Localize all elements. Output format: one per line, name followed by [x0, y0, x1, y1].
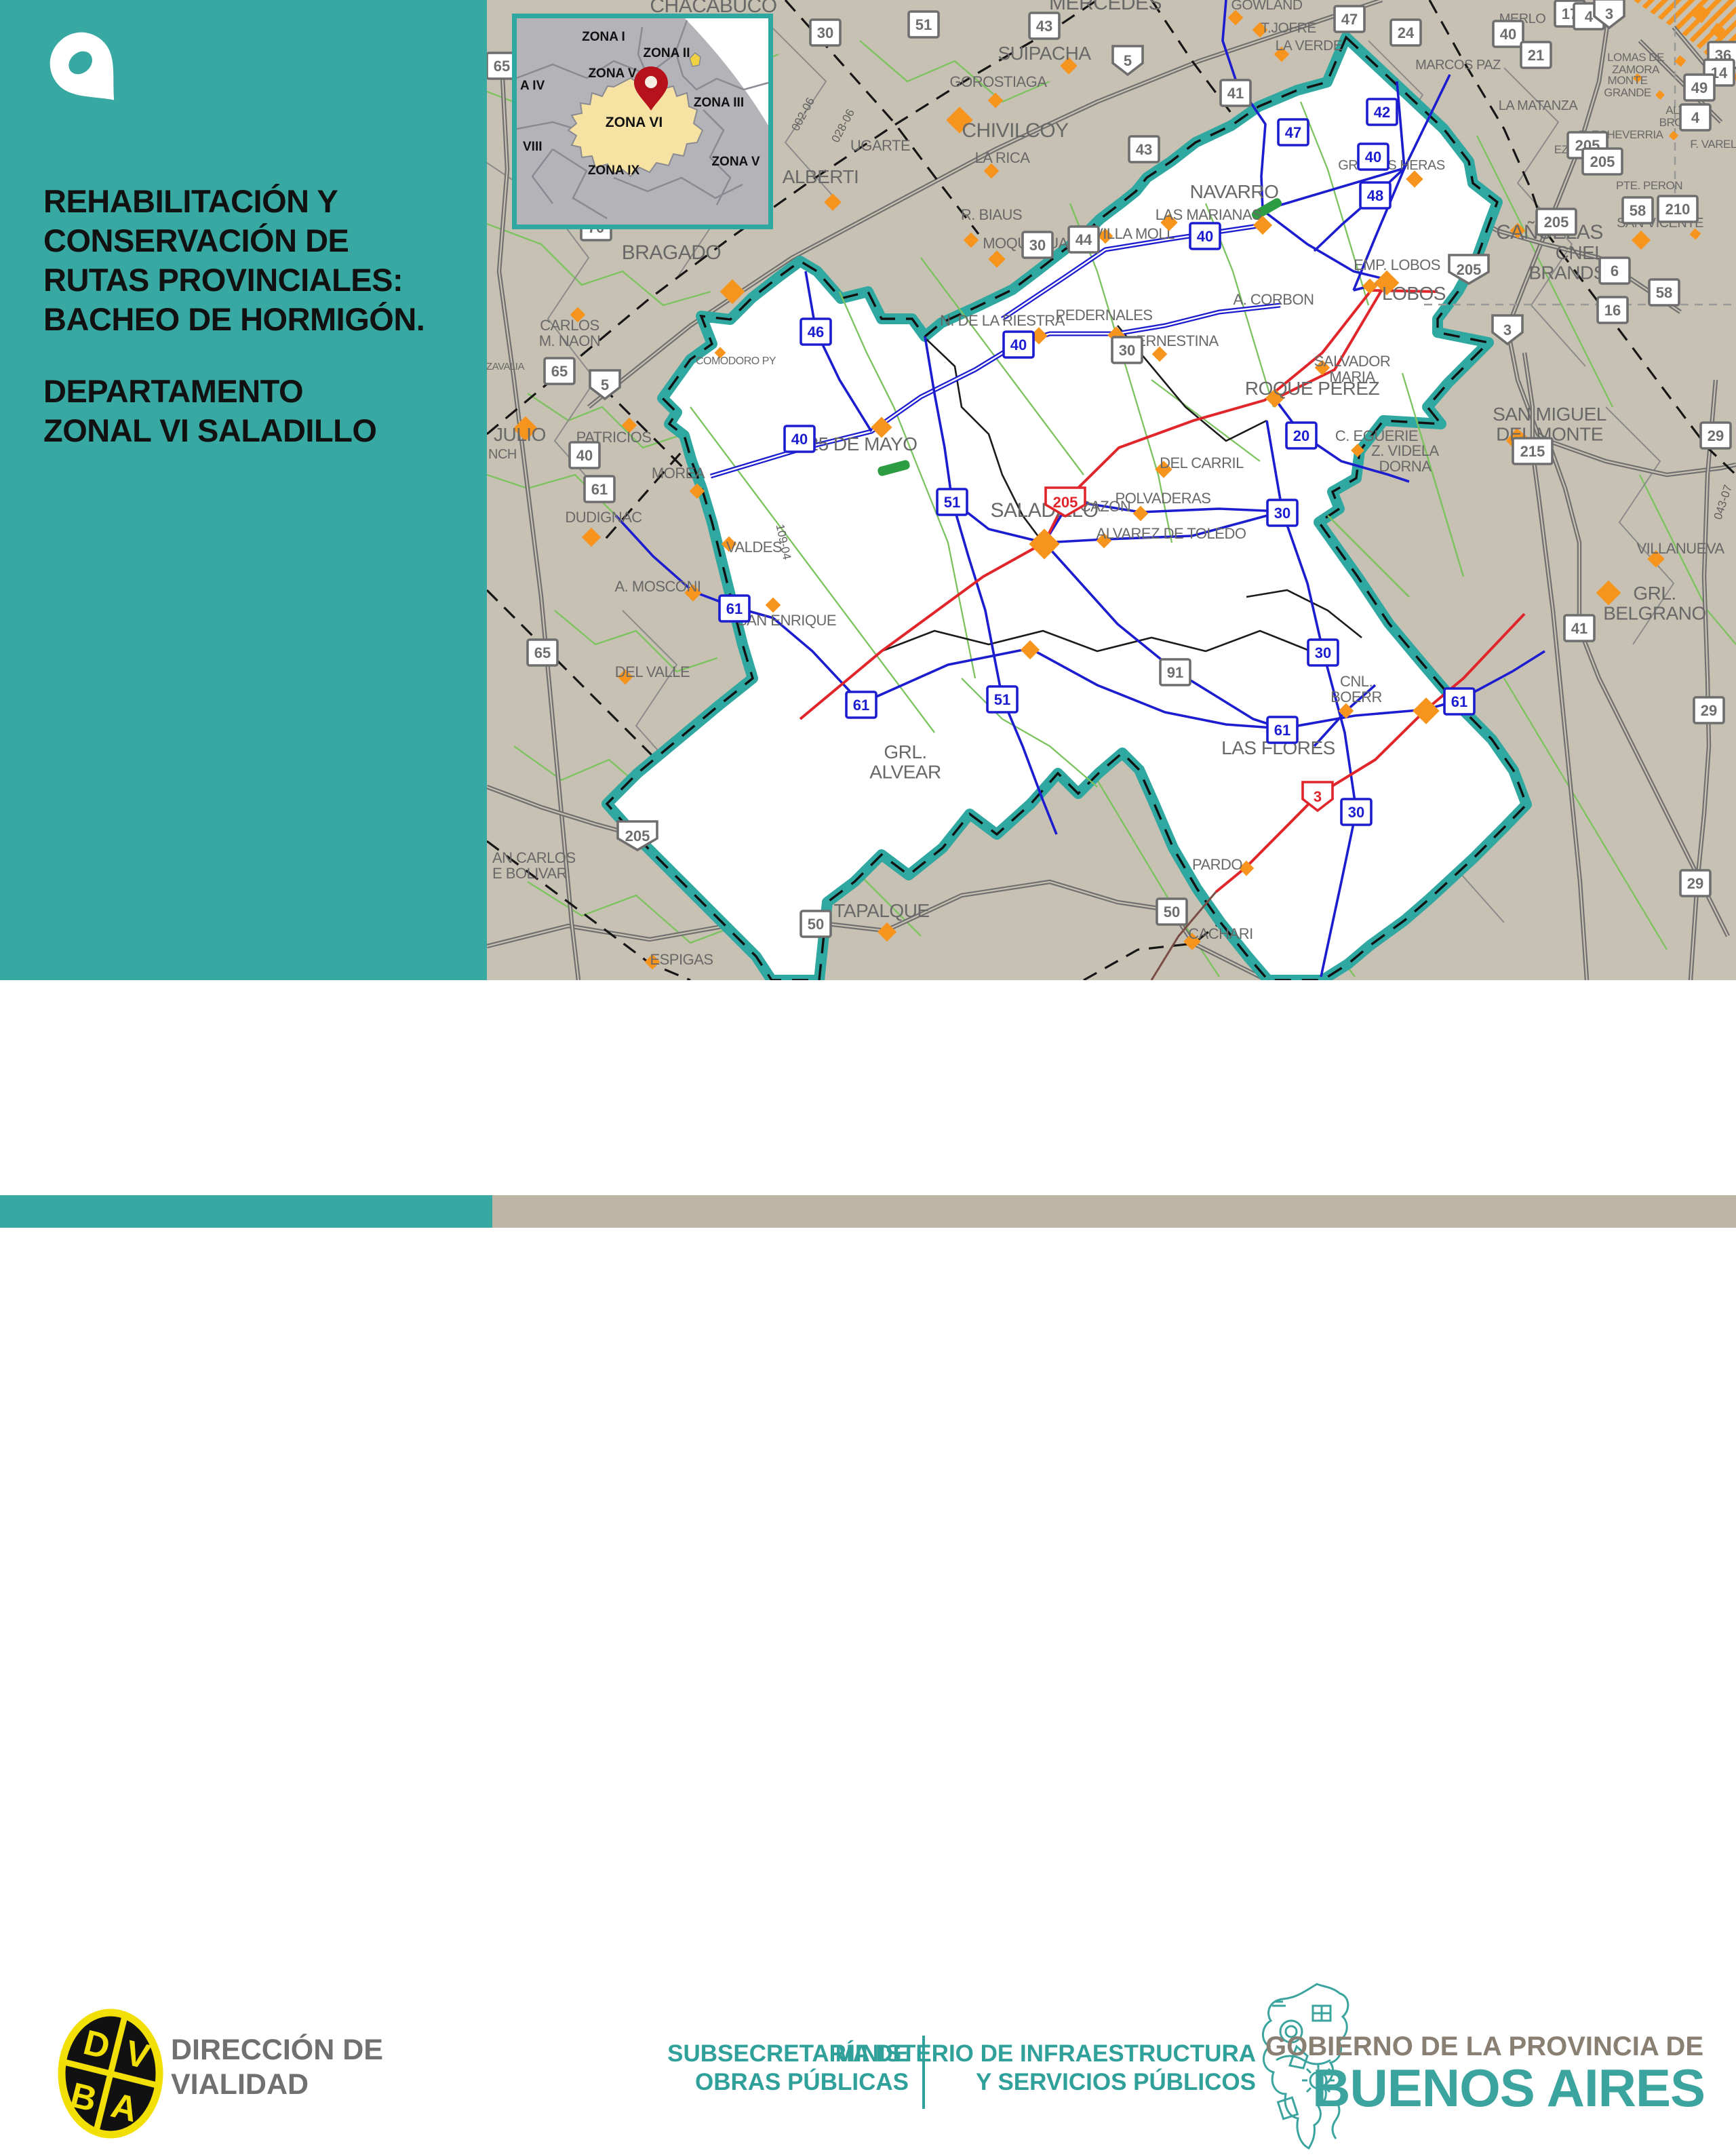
route-shield: 40: [1004, 332, 1033, 357]
svg-text:30: 30: [1119, 342, 1135, 359]
bottom-bar-beige: [492, 1195, 1736, 1228]
route-shield: 61: [846, 692, 876, 718]
route-shield: 47: [1335, 6, 1364, 32]
inset-zone-label: ZONA V: [711, 155, 759, 169]
town-label: COMODORO PY: [696, 355, 776, 367]
svg-text:205: 205: [1590, 153, 1615, 170]
title-line: RUTAS PROVINCIALES:: [43, 260, 425, 300]
svg-text:40: 40: [576, 447, 593, 464]
town-label: CARLOSM. NAON: [539, 317, 601, 349]
route-shield: 20: [1286, 423, 1316, 448]
route-shield: 43: [1129, 136, 1159, 162]
svg-text:47: 47: [1341, 11, 1358, 28]
svg-text:3: 3: [1503, 322, 1512, 338]
route-shield: 91: [1160, 659, 1190, 685]
svg-text:40: 40: [1010, 336, 1027, 353]
town-label: F. VARELA: [1690, 138, 1736, 151]
town-label: ALBERTI: [783, 166, 859, 187]
svg-text:21: 21: [1528, 47, 1544, 64]
svg-text:20: 20: [1293, 427, 1309, 444]
subtitle-line: ZONAL VI SALADILLO: [43, 411, 376, 450]
svg-text:4: 4: [1691, 109, 1700, 126]
route-shield: 61: [585, 476, 614, 502]
route-shield: 21: [1521, 42, 1551, 68]
sidebar: REHABILITACIÓN Y CONSERVACIÓN DE RUTAS P…: [0, 0, 487, 980]
route-shield: 205: [1537, 209, 1576, 235]
province-road-map: CHACABUCOMERCEDESGOWLANDT.JOFRELA VERDES…: [487, 0, 1736, 980]
svg-text:61: 61: [853, 697, 869, 714]
town-label: LAS MARIANAS: [1156, 206, 1262, 223]
town-label: GOWLAND: [1231, 0, 1302, 13]
town-label: T.JOFRE: [1261, 20, 1316, 36]
svg-text:47: 47: [1285, 124, 1301, 141]
route-shield: 50: [1157, 899, 1187, 925]
svg-text:50: 50: [1164, 904, 1180, 920]
svg-text:41: 41: [1227, 85, 1244, 102]
route-shield: 29: [1701, 423, 1731, 448]
route-shield: 51: [909, 12, 939, 37]
route-shield: 210: [1658, 196, 1697, 222]
route-shield: 30: [1023, 232, 1052, 258]
svg-text:24: 24: [1398, 24, 1415, 41]
town-label: VILLANUEVA: [1636, 540, 1724, 557]
svg-text:65: 65: [494, 58, 510, 75]
town-label: ZAVALIA: [487, 361, 524, 372]
town-label: C. EGUERIE: [1335, 427, 1418, 444]
svg-text:3: 3: [1314, 788, 1322, 805]
svg-text:210: 210: [1665, 201, 1691, 218]
route-shield: 6: [1600, 258, 1630, 284]
svg-text:61: 61: [591, 481, 608, 498]
svg-text:61: 61: [726, 600, 743, 617]
route-shield: 40: [570, 442, 599, 468]
route-shield: 30: [1267, 500, 1297, 526]
route-shield: 30: [810, 20, 840, 45]
town-label: MOREA: [652, 465, 705, 482]
town-label: DEL CARRIL: [1160, 454, 1244, 471]
town-label: LOMAS DEZAMORA: [1607, 51, 1664, 76]
svg-text:40: 40: [1197, 228, 1213, 245]
route-shield: 29: [1680, 870, 1710, 896]
sidebar-subtitle: DEPARTAMENTO ZONAL VI SALADILLO: [43, 372, 376, 450]
svg-text:30: 30: [1274, 505, 1290, 522]
svg-text:43: 43: [1036, 18, 1052, 35]
town-label: POLVADERAS: [1116, 490, 1211, 507]
town-label: A. CORBON: [1234, 291, 1314, 308]
route-shield: 48: [1360, 182, 1390, 208]
route-shield: 30: [1341, 799, 1371, 825]
route-shield: 205: [1583, 149, 1622, 174]
route-shield: 65: [545, 358, 574, 384]
svg-text:4: 4: [1585, 8, 1594, 25]
svg-text:29: 29: [1701, 702, 1717, 719]
route-shield: 61: [1267, 717, 1297, 743]
inset-zone-map: ZONA IZONA IIZONA VA IVZONA IIIZONA VIVI…: [512, 14, 773, 229]
route-shield: 47: [1278, 119, 1308, 145]
route-shield: 42: [1367, 99, 1397, 125]
subtitle-line: DEPARTAMENTO: [43, 372, 376, 411]
town-label: PARDO: [1192, 856, 1242, 873]
svg-text:58: 58: [1656, 284, 1672, 301]
svg-text:65: 65: [534, 644, 551, 661]
inset-zone-label: ZONA V: [588, 66, 636, 81]
town-label: ERNESTINA: [1136, 332, 1219, 349]
route-shield: 41: [1564, 615, 1594, 641]
route-shield: 40: [785, 426, 814, 452]
svg-text:5: 5: [1124, 52, 1132, 69]
route-shield: 40: [1358, 144, 1388, 170]
town-label: DEL VALLE: [615, 663, 690, 680]
route-shield: 30: [1308, 640, 1338, 665]
route-shield: 24: [1391, 20, 1421, 45]
town-label: PEDERNALES: [1056, 307, 1153, 324]
town-label: LA RICA: [975, 149, 1031, 166]
town-label: NAVARRO: [1190, 181, 1279, 202]
route-shield: 16: [1598, 297, 1627, 323]
svg-text:6: 6: [1611, 263, 1619, 279]
town-label: CHIVILCOY: [962, 119, 1069, 142]
svg-text:30: 30: [1348, 804, 1364, 821]
svg-text:40: 40: [1500, 26, 1516, 43]
route-shield: 49: [1684, 75, 1714, 100]
route-shield: 46: [801, 319, 831, 345]
town-label: DUDIGNAC: [565, 509, 642, 526]
route-shield: 61: [719, 596, 749, 621]
town-label: LA VERDE: [1276, 38, 1343, 54]
town-label: LA MATANZA: [1499, 98, 1579, 113]
title-line: BACHEO DE HORMIGÓN.: [43, 300, 425, 339]
town-label: VALDES: [726, 539, 782, 556]
town-label: ALVAREZ DE TOLEDO: [1097, 525, 1246, 542]
svg-text:51: 51: [944, 494, 960, 511]
svg-text:58: 58: [1630, 202, 1646, 219]
svg-text:42: 42: [1374, 104, 1390, 121]
route-shield: 40: [1190, 223, 1220, 249]
route-shield: 40: [1493, 21, 1523, 47]
route-shield: 41: [1221, 80, 1250, 106]
route-shield: 4: [1680, 104, 1710, 130]
svg-text:40: 40: [1365, 149, 1381, 166]
svg-text:44: 44: [1076, 231, 1092, 248]
town-label: MERCEDES: [1049, 0, 1162, 14]
route-shield: 50: [801, 911, 831, 937]
inset-zone-label: ZONA I: [582, 30, 625, 44]
route-shield: 43: [1029, 13, 1059, 39]
inset-zone-label: A IV: [520, 79, 545, 93]
svg-text:215: 215: [1520, 443, 1545, 460]
svg-text:46: 46: [808, 324, 824, 341]
town-label: AN CARLOSE BOLIVAR: [492, 849, 576, 882]
svg-text:61: 61: [1451, 693, 1467, 710]
town-label: TAPALQUE: [833, 900, 929, 921]
svg-text:65: 65: [551, 363, 568, 380]
route-shield: 215: [1513, 438, 1552, 464]
town-label: MARCOS PAZ: [1415, 58, 1501, 73]
town-label: CACHARI: [1188, 925, 1253, 942]
route-shield: 30: [1112, 337, 1142, 363]
town-label: ROQUE PEREZ: [1245, 378, 1380, 399]
svg-text:30: 30: [1029, 237, 1046, 254]
sidebar-title: REHABILITACIÓN Y CONSERVACIÓN DE RUTAS P…: [43, 182, 425, 339]
svg-text:205: 205: [625, 828, 650, 844]
svg-text:3: 3: [1605, 5, 1613, 22]
town-label: 25 DE MAYO: [808, 433, 918, 454]
svg-text:205: 205: [1544, 214, 1569, 231]
svg-text:51: 51: [915, 16, 932, 33]
inset-zone-label: ZONA II: [644, 46, 690, 60]
title-line: REHABILITACIÓN Y: [43, 182, 425, 221]
svg-text:16: 16: [1604, 302, 1621, 319]
svg-text:91: 91: [1167, 664, 1183, 681]
svg-text:41: 41: [1571, 620, 1587, 637]
town-label: UGARTE: [850, 137, 910, 154]
town-label: SUIPACHA: [998, 43, 1091, 64]
town-label: GOROSTIAGA: [950, 73, 1048, 90]
svg-text:5: 5: [601, 376, 609, 393]
route-shield: 61: [1444, 688, 1474, 714]
town-label: JULIO: [494, 424, 546, 445]
town-label: R. BIAUS: [961, 206, 1022, 223]
svg-text:205: 205: [1457, 261, 1482, 278]
svg-text:29: 29: [1708, 427, 1724, 444]
inset-zone-label: VIII: [523, 140, 542, 154]
footer: DV BA DIRECCIÓN DE VIALIDAD SUBSECRETARÍ…: [0, 980, 1736, 1195]
town-label: SAN ENRIQUE: [737, 612, 836, 629]
route-shield: 58: [1649, 279, 1679, 305]
town-label: GRL. LAS HERAS: [1338, 158, 1445, 173]
route-shield: 44: [1069, 227, 1099, 252]
svg-text:48: 48: [1367, 187, 1383, 204]
route-shield: 51: [937, 489, 967, 515]
svg-text:50: 50: [808, 916, 824, 933]
town-label: MONTEGRANDE: [1604, 74, 1651, 99]
route-shield: 58: [1623, 197, 1653, 223]
location-pin-icon: [39, 28, 134, 113]
town-label: BRAGADO: [622, 241, 722, 264]
svg-text:49: 49: [1691, 79, 1708, 96]
inset-zone-label: ZONA IX: [588, 163, 640, 178]
route-shield: 51: [987, 686, 1017, 712]
town-label: N. DE LA RIESTRA: [940, 312, 1065, 329]
town-label: A. MOSCONI: [614, 578, 701, 595]
town-label: VILLA MOLL: [1093, 225, 1175, 242]
bottom-bar-teal: [0, 1195, 492, 1228]
svg-text:30: 30: [1315, 644, 1331, 661]
svg-text:29: 29: [1687, 875, 1703, 892]
inset-zone-label: ZONA VI: [606, 115, 663, 130]
buenos-aires-label: BUENOS AIRES: [0, 2057, 1705, 2119]
svg-text:205: 205: [1053, 494, 1078, 511]
route-shield: 65: [528, 640, 557, 665]
svg-text:51: 51: [994, 691, 1010, 708]
svg-text:30: 30: [817, 24, 833, 41]
route-shield: 29: [1694, 697, 1724, 723]
town-label: NCH: [488, 447, 517, 462]
title-line: CONSERVACIÓN DE: [43, 221, 425, 260]
svg-text:61: 61: [1274, 722, 1290, 739]
svg-text:40: 40: [791, 431, 808, 448]
town-label: EMP. LOBOS: [1354, 256, 1440, 273]
inset-zone-label: ZONA III: [694, 96, 744, 110]
town-label: LOBOS: [1382, 283, 1446, 304]
town-label: ESPIGAS: [650, 951, 713, 968]
svg-text:43: 43: [1136, 141, 1152, 158]
town-label: Z. VIDELADORNA: [1371, 442, 1439, 475]
town-label: PTE. PERON: [1616, 179, 1682, 192]
